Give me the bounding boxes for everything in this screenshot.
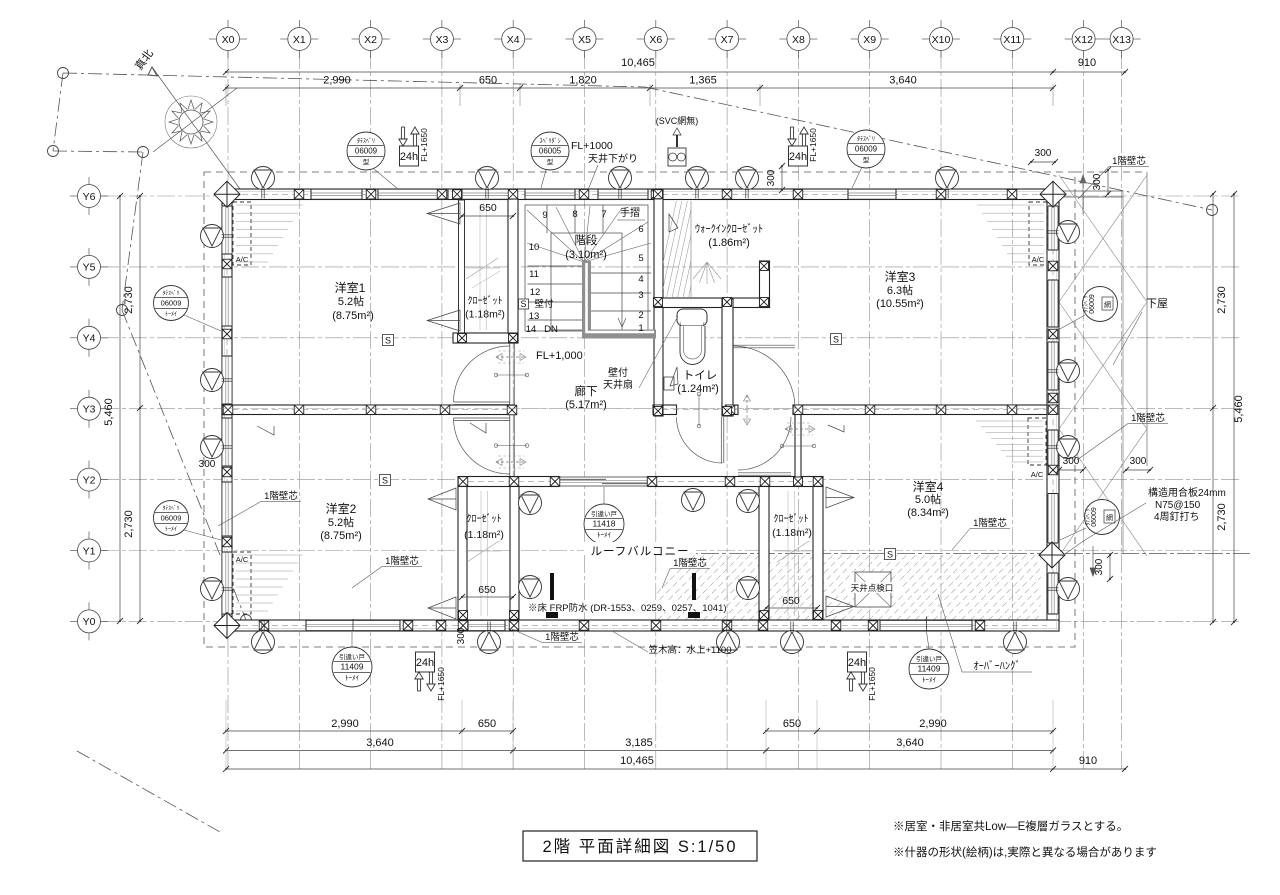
svg-text:天井下がり: 天井下がり [588, 152, 638, 165]
svg-text:13: 13 [529, 311, 540, 322]
svg-text:X5: X5 [578, 34, 591, 46]
svg-text:洋室3: 洋室3 [885, 269, 916, 284]
svg-text:Y2: Y2 [83, 474, 96, 486]
svg-text:X7: X7 [721, 34, 734, 46]
svg-text:300: 300 [199, 459, 216, 470]
svg-text:Y0: Y0 [83, 616, 96, 628]
svg-text:S: S [382, 476, 388, 486]
svg-text:6: 6 [638, 224, 643, 235]
svg-text:N75@150: N75@150 [1155, 500, 1201, 511]
svg-text:Y6: Y6 [83, 191, 96, 203]
svg-text:ｸﾛｰｾﾞｯﾄ: ｸﾛｰｾﾞｯﾄ [467, 513, 502, 525]
svg-text:ｳｫｰｸｲﾝｸﾛｰｾﾞｯﾄ: ｳｫｰｸｲﾝｸﾛｰｾﾞｯﾄ [695, 223, 763, 235]
svg-text:(1.86m²): (1.86m²) [708, 237, 750, 249]
svg-text:1,820: 1,820 [569, 75, 597, 87]
svg-text:X2: X2 [364, 34, 377, 46]
svg-text:壁付: 壁付 [534, 298, 554, 310]
svg-text:(5.17m²): (5.17m²) [565, 399, 607, 411]
svg-text:天井点検口: 天井点検口 [851, 583, 894, 593]
svg-text:ｽﾍﾞﾘﾀﾞｼ: ｽﾍﾞﾘﾀﾞｼ [539, 138, 560, 145]
svg-text:X8: X8 [792, 34, 805, 46]
svg-text:階段: 階段 [575, 233, 598, 247]
svg-text:06005: 06005 [539, 147, 562, 156]
svg-text:A/C: A/C [236, 255, 249, 264]
svg-text:X0: X0 [222, 34, 235, 46]
svg-text:2,730: 2,730 [1216, 503, 1228, 531]
svg-text:網: 網 [1104, 300, 1111, 309]
svg-text:(3.10m²): (3.10m²) [565, 249, 607, 261]
svg-text:FL+1650: FL+1650 [419, 128, 429, 162]
svg-text:X1: X1 [293, 34, 306, 46]
svg-text:(1.18m²): (1.18m²) [465, 309, 505, 321]
svg-text:FL+1650: FL+1650 [808, 128, 818, 162]
svg-text:1階壁芯: 1階壁芯 [973, 517, 1007, 529]
svg-text:8: 8 [572, 209, 577, 220]
svg-text:910: 910 [1079, 755, 1097, 767]
svg-text:X10: X10 [932, 34, 951, 46]
svg-text:11: 11 [529, 269, 539, 280]
svg-text:A/C: A/C [236, 555, 249, 564]
svg-text:下屋: 下屋 [1146, 297, 1168, 310]
svg-text:11418: 11418 [592, 519, 615, 529]
svg-text:300: 300 [766, 169, 777, 186]
svg-text:14: 14 [526, 324, 537, 335]
svg-text:ﾄｰﾒｲ: ﾄｰﾒｲ [922, 677, 936, 684]
svg-text:06009: 06009 [355, 147, 378, 156]
svg-text:X13: X13 [1112, 34, 1131, 46]
svg-text:ﾄｰﾒｲ: ﾄｰﾒｲ [345, 675, 359, 682]
svg-text:2: 2 [638, 310, 643, 321]
svg-text:廊下: 廊下 [575, 384, 598, 398]
svg-text:910: 910 [1078, 57, 1096, 69]
svg-text:06009: 06009 [1089, 294, 1096, 314]
svg-text:650: 650 [783, 718, 801, 730]
svg-text:引違い戸: 引違い戸 [916, 654, 943, 663]
svg-text:A/C: A/C [1031, 470, 1044, 479]
svg-text:1階壁芯: 1階壁芯 [264, 490, 298, 502]
svg-text:ルーフバルコニー: ルーフバルコニー [590, 545, 689, 558]
svg-text:トイレ: トイレ [683, 370, 718, 382]
svg-text:ﾄｰﾒｲ: ﾄｰﾒｲ [165, 527, 177, 533]
svg-text:2,990: 2,990 [331, 718, 359, 730]
svg-text:※什器の形状(絵柄)は,実際と異なる場合があります: ※什器の形状(絵柄)は,実際と異なる場合があります [893, 845, 1157, 859]
svg-text:10,465: 10,465 [620, 755, 654, 767]
svg-text:洋室2: 洋室2 [326, 501, 357, 516]
svg-text:ﾄｰﾒｲ: ﾄｰﾒｲ [165, 312, 177, 318]
svg-text:3,640: 3,640 [889, 75, 917, 87]
svg-text:ﾀﾃｽﾍﾞﾘ: ﾀﾃｽﾍﾞﾘ [357, 138, 375, 145]
svg-text:10,465: 10,465 [621, 57, 655, 69]
svg-text:650: 650 [782, 595, 800, 607]
svg-text:洋室4: 洋室4 [913, 479, 944, 494]
svg-text:5.2帖: 5.2帖 [338, 295, 364, 308]
svg-text:ﾀﾃｽﾍﾞﾘ: ﾀﾃｽﾍﾞﾘ [857, 136, 875, 143]
svg-text:A/C: A/C [1032, 255, 1045, 264]
svg-text:7: 7 [601, 209, 606, 220]
svg-text:ﾀﾃｽﾍﾞﾘ: ﾀﾃｽﾍﾞﾘ [1083, 296, 1090, 313]
svg-text:ｵｰﾊﾞｰﾊﾝｸﾞ: ｵｰﾊﾞｰﾊﾝｸﾞ [973, 660, 1020, 672]
svg-text:型: 型 [863, 155, 870, 164]
svg-text:06009: 06009 [855, 145, 878, 154]
svg-text:300: 300 [1035, 148, 1052, 159]
svg-text:1階壁芯: 1階壁芯 [545, 631, 579, 643]
svg-text:FL+1,000: FL+1,000 [536, 350, 583, 362]
svg-text:X3: X3 [435, 34, 448, 46]
svg-text:1階壁芯: 1階壁芯 [385, 555, 419, 567]
svg-text:S: S [520, 299, 526, 309]
svg-text:※居室・非居室共Low—E複層ガラスとする。: ※居室・非居室共Low—E複層ガラスとする。 [893, 819, 1128, 833]
svg-text:ｸﾛｰｾﾞｯﾄ: ｸﾛｰｾﾞｯﾄ [774, 513, 809, 525]
svg-text:(8.75m²): (8.75m²) [320, 530, 362, 542]
svg-text:型: 型 [363, 157, 370, 166]
svg-text:3,640: 3,640 [366, 737, 394, 749]
svg-text:300: 300 [1092, 173, 1103, 190]
svg-text:引違い戸: 引違い戸 [339, 652, 366, 661]
svg-text:ﾀﾃｽﾍﾞﾘ: ﾀﾃｽﾍﾞﾘ [1085, 509, 1092, 526]
svg-text:1階壁芯: 1階壁芯 [1131, 412, 1165, 424]
svg-text:1階壁芯: 1階壁芯 [1112, 155, 1146, 167]
svg-text:X9: X9 [863, 34, 876, 46]
svg-text:1,365: 1,365 [689, 75, 717, 87]
svg-text:24h: 24h [789, 151, 807, 163]
svg-text:5.0帖: 5.0帖 [915, 493, 941, 506]
svg-text:Y1: Y1 [83, 545, 96, 557]
svg-text:12: 12 [530, 287, 541, 298]
svg-text:X12: X12 [1074, 34, 1093, 46]
svg-text:DN: DN [544, 324, 558, 335]
svg-text:650: 650 [478, 584, 496, 596]
svg-text:2,990: 2,990 [323, 75, 351, 87]
svg-text:FL+1650: FL+1650 [867, 667, 877, 701]
svg-text:3,640: 3,640 [896, 737, 924, 749]
svg-text:3: 3 [638, 290, 643, 301]
svg-text:天井扇: 天井扇 [603, 378, 633, 391]
svg-text:06009: 06009 [161, 299, 182, 308]
svg-text:2階 平面詳細図 S:1/50: 2階 平面詳細図 S:1/50 [542, 837, 737, 856]
svg-text:構造用合板24mm: 構造用合板24mm [1148, 486, 1226, 499]
svg-text:(8.75m²): (8.75m²) [332, 310, 374, 322]
svg-text:笠木高：水上+1100: 笠木高：水上+1100 [649, 644, 732, 656]
svg-text:6.3帖: 6.3帖 [887, 284, 913, 297]
svg-text:(8.34m²): (8.34m²) [907, 507, 949, 519]
svg-text:24h: 24h [416, 657, 434, 669]
svg-text:3,185: 3,185 [625, 737, 653, 749]
svg-text:Y5: Y5 [83, 262, 96, 274]
svg-text:4: 4 [638, 274, 643, 285]
svg-text:11409: 11409 [917, 664, 940, 674]
svg-text:(1.18m²): (1.18m²) [464, 529, 504, 541]
svg-text:300: 300 [1094, 558, 1105, 575]
svg-text:24h: 24h [400, 151, 418, 163]
svg-text:X4: X4 [507, 34, 520, 46]
svg-text:(1.18m²): (1.18m²) [772, 527, 812, 539]
svg-text:300: 300 [1130, 456, 1147, 467]
svg-text:FL+1650: FL+1650 [436, 667, 446, 701]
svg-text:FL+1000: FL+1000 [571, 140, 613, 152]
svg-text:1: 1 [638, 323, 643, 334]
svg-text:2,730: 2,730 [1216, 286, 1228, 314]
svg-text:X6: X6 [649, 34, 662, 46]
svg-text:引違い戸: 引違い戸 [591, 509, 618, 518]
svg-text:2,730: 2,730 [123, 286, 135, 314]
svg-text:ｸﾛｰｾﾞｯﾄ: ｸﾛｰｾﾞｯﾄ [468, 295, 503, 307]
svg-text:11409: 11409 [340, 662, 363, 672]
svg-text:5: 5 [638, 253, 643, 264]
svg-text:5.2帖: 5.2帖 [328, 516, 354, 529]
svg-text:X11: X11 [1003, 34, 1021, 46]
svg-text:型: 型 [547, 157, 554, 166]
svg-text:5,460: 5,460 [103, 398, 115, 426]
svg-text:300: 300 [1063, 456, 1080, 467]
svg-text:(SVC網無): (SVC網無) [656, 115, 699, 126]
svg-text:ﾀﾃｽﾍﾞﾘ: ﾀﾃｽﾍﾞﾘ [163, 290, 180, 297]
svg-text:※床 FRP防水 (DR-1553、0259、0257、10: ※床 FRP防水 (DR-1553、0259、0257、1041) [528, 602, 727, 614]
svg-text:ﾄｰﾒｲ: ﾄｰﾒｲ [597, 532, 611, 539]
svg-text:S: S [833, 335, 839, 345]
svg-text:9: 9 [542, 210, 547, 221]
svg-text:ﾀﾃｽﾍﾞﾘ: ﾀﾃｽﾍﾞﾘ [163, 505, 180, 512]
svg-text:10: 10 [529, 242, 540, 253]
svg-text:洋室1: 洋室1 [335, 280, 366, 295]
svg-text:S: S [385, 336, 391, 346]
svg-text:S: S [887, 550, 893, 560]
svg-text:網: 網 [1106, 513, 1113, 522]
svg-text:Y4: Y4 [83, 333, 96, 345]
svg-text:2,730: 2,730 [123, 510, 135, 538]
svg-text:650: 650 [479, 75, 497, 87]
svg-text:650: 650 [478, 718, 496, 730]
svg-text:06009: 06009 [1091, 507, 1098, 527]
svg-text:2,990: 2,990 [919, 718, 947, 730]
svg-text:Y3: Y3 [83, 404, 96, 416]
svg-text:4周釘打ち: 4周釘打ち [1154, 510, 1200, 523]
svg-text:手摺: 手摺 [620, 206, 640, 219]
svg-text:1階壁芯: 1階壁芯 [673, 557, 707, 569]
svg-text:(1.24m²): (1.24m²) [677, 383, 719, 395]
svg-text:24h: 24h [848, 657, 866, 669]
svg-text:(10.55m²): (10.55m²) [876, 298, 924, 310]
svg-text:壁付: 壁付 [608, 366, 628, 379]
svg-text:300: 300 [456, 627, 467, 644]
svg-text:650: 650 [479, 202, 497, 214]
svg-text:5,460: 5,460 [1233, 395, 1245, 423]
svg-text:06009: 06009 [161, 514, 182, 523]
